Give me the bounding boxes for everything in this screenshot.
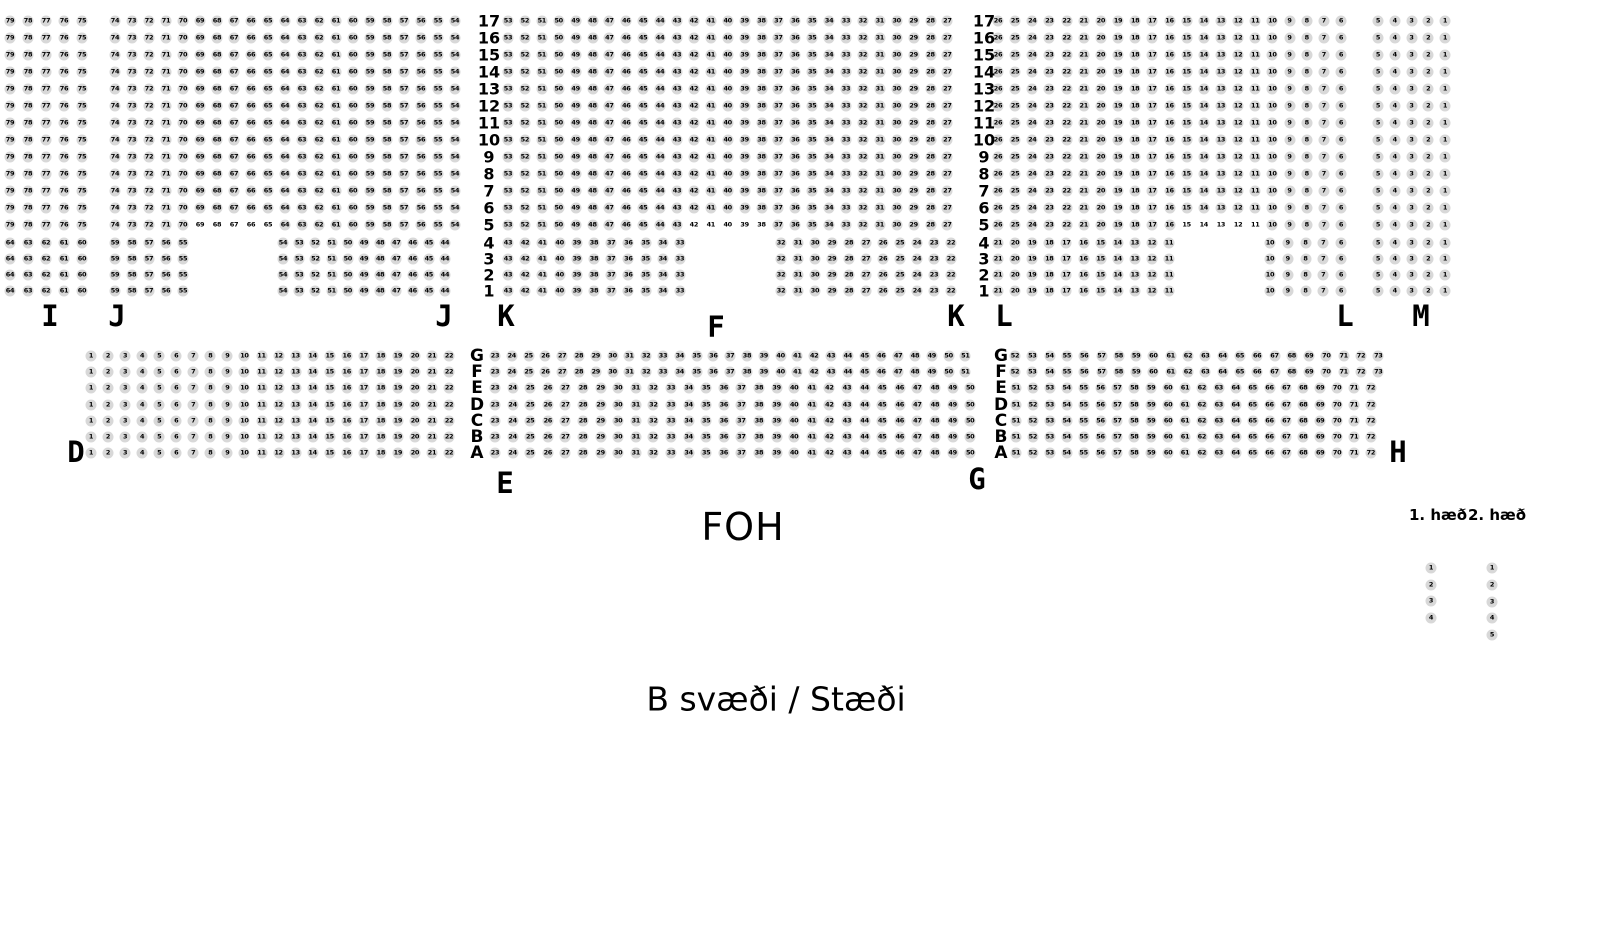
seat[interactable]: 15 [1181,203,1192,214]
seat[interactable]: 74 [110,101,121,112]
seat[interactable]: 68 [1298,415,1309,426]
seat[interactable]: 66 [246,33,257,44]
seat[interactable]: 42 [688,84,699,95]
seat[interactable]: 24 [1027,220,1038,231]
seat[interactable]: 22 [946,238,957,249]
seat[interactable]: 45 [877,383,888,394]
seat[interactable]: 36 [718,399,729,410]
seat[interactable]: 59 [365,203,376,214]
seat[interactable]: 8 [205,351,216,362]
seat[interactable]: 20 [409,432,420,443]
seat[interactable]: 16 [1078,254,1089,265]
seat[interactable]: 60 [77,254,88,265]
seat[interactable]: 37 [736,448,747,459]
seat[interactable]: 56 [416,101,427,112]
seat[interactable]: 73 [127,33,138,44]
seat[interactable]: 66 [246,152,257,163]
seat[interactable]: 37 [773,50,784,61]
seat[interactable]: 64 [1230,383,1241,394]
seat[interactable]: 16 [1164,67,1175,78]
seat[interactable]: 29 [908,101,919,112]
seat[interactable]: 77 [41,152,52,163]
seat[interactable]: 12 [273,432,284,443]
seat[interactable]: 73 [127,16,138,27]
seat[interactable]: 73 [127,203,138,214]
seat[interactable]: 47 [893,351,904,362]
seat[interactable]: 13 [1215,118,1226,129]
seat[interactable]: 60 [77,270,88,281]
seat[interactable]: 14 [1112,254,1123,265]
seat[interactable]: 8 [205,415,216,426]
seat[interactable]: 61 [1180,383,1191,394]
seat[interactable]: 62 [314,220,325,231]
seat[interactable]: 27 [861,238,872,249]
seat[interactable]: 9 [1284,101,1295,112]
seat[interactable]: 27 [861,254,872,265]
seat[interactable]: 17 [358,432,369,443]
seat[interactable]: 22 [444,351,455,362]
seat[interactable]: 64 [280,16,291,27]
seat[interactable]: 35 [807,135,818,146]
seat[interactable]: 63 [297,67,308,78]
seat[interactable]: 31 [874,101,885,112]
seat[interactable]: 75 [77,135,88,146]
seat[interactable]: 4 [1389,203,1400,214]
seat[interactable]: 63 [297,186,308,197]
seat[interactable]: 40 [722,203,733,214]
seat[interactable]: 71 [161,16,172,27]
seat[interactable]: 49 [359,270,370,281]
seat[interactable]: 1 [1440,67,1451,78]
seat[interactable]: 4 [1389,238,1400,249]
seat[interactable]: 7 [1318,33,1329,44]
seat[interactable]: 21 [1078,84,1089,95]
seat[interactable]: 21 [1078,135,1089,146]
seat[interactable]: 19 [1113,135,1124,146]
seat[interactable]: 69 [1304,367,1315,378]
seat[interactable]: 52 [519,203,530,214]
seat[interactable]: 69 [195,118,206,129]
seat[interactable]: 55 [178,254,189,265]
seat[interactable]: 29 [908,84,919,95]
seat[interactable]: 44 [655,16,666,27]
seat[interactable]: 64 [280,186,291,197]
seat[interactable]: 73 [127,135,138,146]
seat[interactable]: 10 [239,351,250,362]
seat[interactable]: 14 [307,448,318,459]
seat[interactable]: 19 [1113,16,1124,27]
seat[interactable]: 11 [1250,220,1261,231]
seat[interactable]: 5 [1373,118,1384,129]
seat[interactable]: 63 [1213,432,1224,443]
seat[interactable]: 44 [859,415,870,426]
seat[interactable]: 52 [1027,415,1038,426]
seat[interactable]: 29 [908,118,919,129]
seat[interactable]: 46 [621,84,632,95]
seat[interactable]: 30 [891,220,902,231]
seat[interactable]: 2 [1423,152,1434,163]
seat[interactable]: 42 [824,399,835,410]
seat[interactable]: 13 [290,399,301,410]
seat[interactable]: 68 [1298,383,1309,394]
seat[interactable]: 61 [1180,448,1191,459]
seat[interactable]: 46 [407,270,418,281]
seat[interactable]: 26 [993,220,1004,231]
seat[interactable]: 19 [1113,169,1124,180]
seat[interactable]: 48 [910,367,921,378]
seat[interactable]: 50 [965,399,976,410]
seat[interactable]: 38 [756,203,767,214]
seat[interactable]: 19 [1113,101,1124,112]
seat[interactable]: 30 [891,169,902,180]
seat[interactable]: 2 [1423,254,1434,265]
seat[interactable]: 37 [773,203,784,214]
seat[interactable]: 46 [894,399,905,410]
seat[interactable]: 38 [756,186,767,197]
seat[interactable]: 44 [655,101,666,112]
seat[interactable]: 28 [574,351,585,362]
seat[interactable]: 64 [280,33,291,44]
seat[interactable]: 54 [450,50,461,61]
seat[interactable]: 70 [178,152,189,163]
seat[interactable]: 74 [110,186,121,197]
seat[interactable]: 66 [246,118,257,129]
seat[interactable]: 41 [705,186,716,197]
seat[interactable]: 39 [739,135,750,146]
seat[interactable]: 18 [1130,169,1141,180]
seat[interactable]: 36 [790,84,801,95]
seat[interactable]: 35 [691,367,702,378]
seat[interactable]: 67 [1281,399,1292,410]
seat[interactable]: 63 [297,169,308,180]
seat[interactable]: 42 [809,367,820,378]
seat[interactable]: 29 [908,203,919,214]
seat[interactable]: 68 [1286,367,1297,378]
seat[interactable]: 54 [1061,415,1072,426]
seat[interactable]: 40 [775,351,786,362]
seat[interactable]: 68 [212,101,223,112]
seat[interactable]: 36 [718,448,729,459]
seat[interactable]: 35 [701,415,712,426]
seat[interactable]: 38 [754,432,765,443]
seat[interactable]: 64 [280,203,291,214]
seat[interactable]: 43 [672,118,683,129]
seat[interactable]: 27 [942,169,953,180]
seat[interactable]: 23 [1044,169,1055,180]
seat[interactable]: 42 [520,270,531,281]
seat[interactable]: 20 [1095,33,1106,44]
seat[interactable]: 12 [273,351,284,362]
seat[interactable]: 38 [589,238,600,249]
seat[interactable]: 49 [947,415,958,426]
seat[interactable]: 19 [392,448,403,459]
seat[interactable]: 58 [1113,351,1124,362]
seat[interactable]: 28 [578,415,589,426]
seat[interactable]: 21 [1078,33,1089,44]
seat[interactable]: 64 [5,238,16,249]
seat[interactable]: 11 [1250,33,1261,44]
seat[interactable]: 76 [59,118,70,129]
seat[interactable]: 38 [589,270,600,281]
seat[interactable]: 68 [212,186,223,197]
seat[interactable]: 40 [554,254,565,265]
seat[interactable]: 67 [229,220,240,231]
seat[interactable]: 2 [1423,203,1434,214]
seat[interactable]: 34 [674,367,685,378]
seat[interactable]: 58 [382,101,393,112]
seat[interactable]: 68 [212,220,223,231]
seat[interactable]: 32 [857,135,868,146]
seat[interactable]: 12 [1233,101,1244,112]
seat[interactable]: 14 [307,383,318,394]
seat[interactable]: 1 [1440,254,1451,265]
seat[interactable]: 57 [399,186,410,197]
seat[interactable]: 78 [23,169,34,180]
seat[interactable]: 22 [444,415,455,426]
seat[interactable]: 64 [5,286,16,297]
seat[interactable]: 43 [672,67,683,78]
seat[interactable]: 11 [256,432,267,443]
seat[interactable]: 20 [409,351,420,362]
seat[interactable]: 71 [1349,383,1360,394]
seat[interactable]: 43 [842,415,853,426]
seat[interactable]: 30 [613,399,624,410]
seat[interactable]: 49 [570,118,581,129]
seat[interactable]: 2 [1423,67,1434,78]
seat[interactable]: 54 [1044,351,1055,362]
seat[interactable]: 16 [341,367,352,378]
seat[interactable]: 50 [342,286,353,297]
seat[interactable]: 42 [824,448,835,459]
seat[interactable]: 9 [1284,67,1295,78]
seat[interactable]: 4 [137,448,148,459]
seat[interactable]: 20 [1010,270,1021,281]
seat[interactable]: 12 [273,399,284,410]
seat[interactable]: 46 [621,101,632,112]
seat[interactable]: 57 [1096,367,1107,378]
seat[interactable]: 43 [503,254,514,265]
seat[interactable]: 6 [1336,67,1347,78]
seat[interactable]: 39 [571,238,582,249]
seat[interactable]: 75 [77,67,88,78]
seat[interactable]: 14 [1198,220,1209,231]
seat[interactable]: 33 [675,254,686,265]
seat[interactable]: 78 [23,118,34,129]
seat[interactable]: 18 [1130,101,1141,112]
seat[interactable]: 50 [342,254,353,265]
seat[interactable]: 3 [1406,118,1417,129]
seat[interactable]: 24 [1027,118,1038,129]
seat[interactable]: 37 [773,67,784,78]
seat[interactable]: 78 [23,220,34,231]
seat[interactable]: 35 [807,84,818,95]
seat[interactable]: 44 [842,367,853,378]
seat[interactable]: 47 [391,238,402,249]
seat[interactable]: 67 [1281,448,1292,459]
seat[interactable]: 51 [536,67,547,78]
seat[interactable]: 55 [1078,399,1089,410]
seat[interactable]: 52 [310,286,321,297]
seat[interactable]: 9 [1284,84,1295,95]
seat[interactable]: 58 [127,238,138,249]
seat[interactable]: 20 [409,448,420,459]
seat[interactable]: 10 [1267,118,1278,129]
seat[interactable]: 23 [490,448,501,459]
seat[interactable]: 70 [178,135,189,146]
seat[interactable]: 57 [144,270,155,281]
seat[interactable]: 48 [587,67,598,78]
seat[interactable]: 32 [648,383,659,394]
seat[interactable]: 59 [110,286,121,297]
seat[interactable]: 62 [314,186,325,197]
seat[interactable]: 69 [195,135,206,146]
seat[interactable]: 66 [246,50,257,61]
seat[interactable]: 77 [41,203,52,214]
seat[interactable]: 14 [1198,84,1209,95]
seat[interactable]: 56 [416,186,427,197]
seat[interactable]: 53 [1027,367,1038,378]
seat[interactable]: 53 [1044,383,1055,394]
seat[interactable]: 36 [790,50,801,61]
seat[interactable]: 8 [1301,220,1312,231]
seat[interactable]: 42 [824,415,835,426]
seat[interactable]: 7 [188,383,199,394]
seat[interactable]: 57 [399,16,410,27]
seat[interactable]: 16 [1164,152,1175,163]
seat[interactable]: 70 [1332,432,1343,443]
seat[interactable]: 63 [23,254,34,265]
seat[interactable]: 22 [444,383,455,394]
seat[interactable]: 66 [1264,448,1275,459]
seat[interactable]: 73 [127,118,138,129]
seat[interactable]: 62 [41,238,52,249]
seat[interactable]: 61 [331,169,342,180]
seat[interactable]: 77 [41,186,52,197]
seat[interactable]: 57 [399,84,410,95]
seat[interactable]: 76 [59,152,70,163]
seat[interactable]: 1 [1440,270,1451,281]
seat[interactable]: 12 [1146,254,1157,265]
seat[interactable]: 1 [1440,118,1451,129]
seat[interactable]: 52 [1027,432,1038,443]
seat[interactable]: 50 [965,432,976,443]
seat[interactable]: 44 [655,203,666,214]
seat[interactable]: 62 [314,33,325,44]
seat[interactable]: 19 [1027,286,1038,297]
seat[interactable]: 52 [310,254,321,265]
seat[interactable]: 2 [103,367,114,378]
seat[interactable]: 37 [773,135,784,146]
seat[interactable]: 13 [1215,186,1226,197]
seat[interactable]: 28 [925,101,936,112]
seat[interactable]: 28 [925,186,936,197]
seat[interactable]: 32 [857,50,868,61]
seat[interactable]: 79 [5,33,16,44]
seat[interactable]: 39 [739,186,750,197]
seat[interactable]: 8 [1300,238,1311,249]
seat[interactable]: 62 [1196,383,1207,394]
seat[interactable]: 13 [290,351,301,362]
seat[interactable]: 27 [560,415,571,426]
seat[interactable]: 13 [290,432,301,443]
seat[interactable]: 22 [1061,186,1072,197]
seat[interactable]: 19 [1027,238,1038,249]
seat[interactable]: 3 [120,383,131,394]
seat[interactable]: 19 [1113,220,1124,231]
seat[interactable]: 65 [263,186,274,197]
seat[interactable]: 51 [536,16,547,27]
seat[interactable]: 67 [229,67,240,78]
seat[interactable]: 25 [1010,203,1021,214]
seat[interactable]: 21 [427,399,438,410]
seat[interactable]: 70 [178,169,189,180]
seat[interactable]: 36 [708,367,719,378]
seat[interactable]: 51 [536,118,547,129]
seat[interactable]: 77 [41,118,52,129]
seat[interactable]: 54 [450,33,461,44]
seat[interactable]: 42 [688,67,699,78]
seat[interactable]: 42 [824,383,835,394]
seat[interactable]: 7 [188,399,199,410]
seat[interactable]: 38 [756,67,767,78]
seat[interactable]: 59 [365,16,376,27]
seat[interactable]: 22 [1061,67,1072,78]
seat[interactable]: 59 [365,169,376,180]
seat[interactable]: 34 [683,399,694,410]
seat[interactable]: 33 [841,101,852,112]
seat[interactable]: 27 [560,383,571,394]
seat[interactable]: 78 [23,84,34,95]
seat[interactable]: 54 [1061,399,1072,410]
seat[interactable]: 72 [1365,432,1376,443]
seat[interactable]: 69 [195,50,206,61]
seat[interactable]: 30 [891,186,902,197]
seat[interactable]: 38 [756,84,767,95]
seat[interactable]: 57 [399,203,410,214]
seat[interactable]: 18 [1130,16,1141,27]
seat[interactable]: 15 [1181,220,1192,231]
seat[interactable]: 40 [722,16,733,27]
seat[interactable]: 52 [519,152,530,163]
seat[interactable]: 77 [41,169,52,180]
seat[interactable]: 58 [382,33,393,44]
seat[interactable]: 9 [1284,50,1295,61]
seat[interactable]: 2 [1423,169,1434,180]
seat[interactable]: 37 [773,84,784,95]
seat[interactable]: 51 [536,50,547,61]
seat[interactable]: 21 [993,238,1004,249]
seat[interactable]: 67 [1269,367,1280,378]
seat[interactable]: 12 [1233,135,1244,146]
seat[interactable]: 24 [1027,84,1038,95]
seat[interactable]: 30 [891,50,902,61]
seat[interactable]: 47 [604,220,615,231]
seat[interactable]: 28 [925,203,936,214]
seat[interactable]: 20 [1095,16,1106,27]
seat[interactable]: 45 [877,432,888,443]
seat[interactable]: 68 [212,50,223,61]
seat[interactable]: 56 [416,84,427,95]
seat[interactable]: 67 [229,135,240,146]
seat[interactable]: 22 [444,432,455,443]
seat[interactable]: 43 [672,152,683,163]
seat[interactable]: 44 [440,286,451,297]
seat[interactable]: 50 [553,84,564,95]
seat[interactable]: 73 [1373,367,1384,378]
seat[interactable]: 38 [742,351,753,362]
seat[interactable]: 27 [861,270,872,281]
seat[interactable]: 36 [790,152,801,163]
